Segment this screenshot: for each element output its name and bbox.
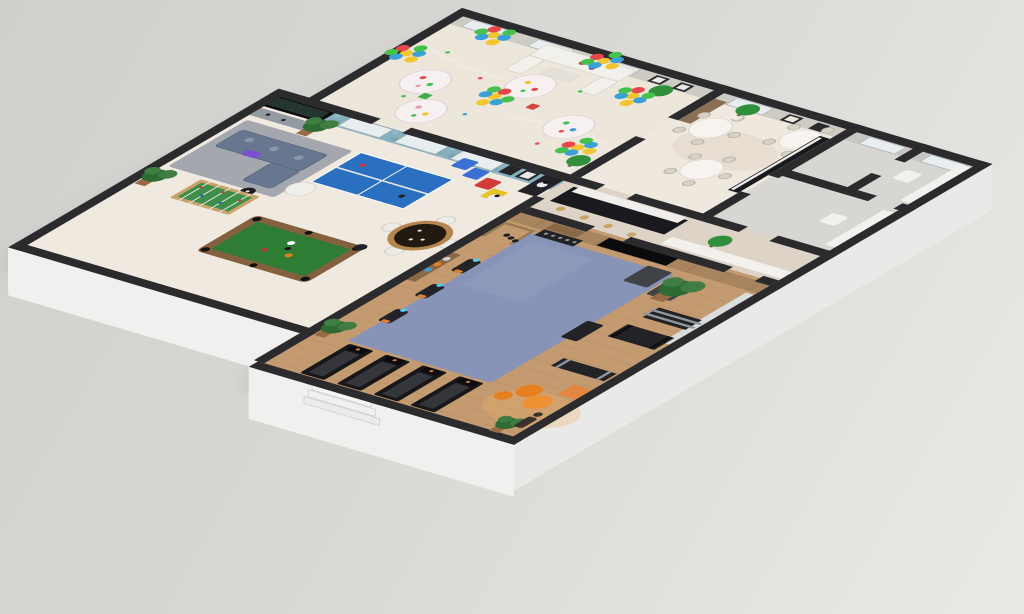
floorplan-render-canvas (0, 0, 1024, 614)
floor-plane (0, 0, 1012, 449)
isometric-floorplan-svg (0, 0, 1024, 614)
